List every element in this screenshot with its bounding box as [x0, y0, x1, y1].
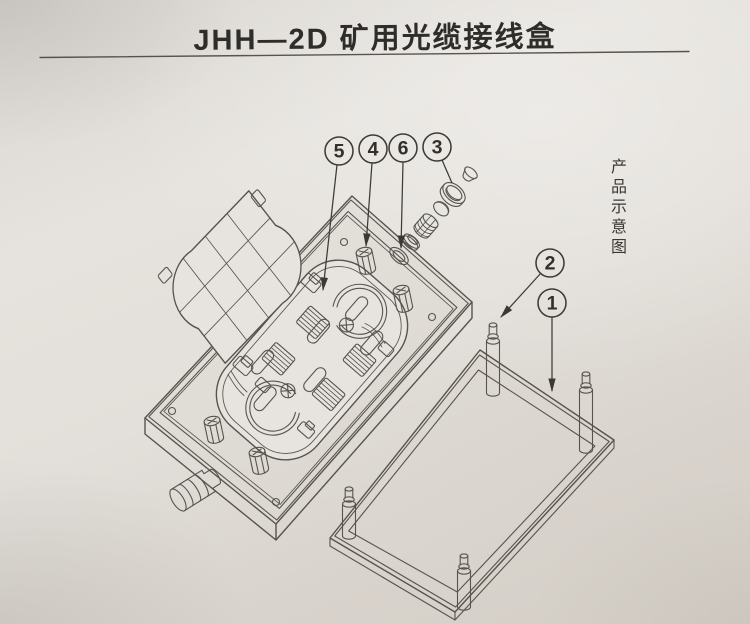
cable-gland-knob	[167, 464, 225, 513]
leader-3	[442, 160, 452, 183]
gland-body	[412, 211, 441, 240]
callout-2: 2	[536, 249, 564, 277]
leader-6	[401, 162, 403, 248]
photographed-page: JHH—2D 矿用光缆接线盒	[0, 0, 750, 624]
callout-6: 6	[389, 134, 417, 162]
callout-3: 3	[423, 133, 451, 161]
callout-1: 1	[538, 289, 566, 317]
callout-6-number: 6	[398, 138, 409, 160]
gland-dome	[431, 199, 452, 219]
gland-nut	[436, 178, 469, 210]
callout-5-number: 5	[334, 141, 345, 163]
lid-tab	[158, 267, 173, 284]
callout-1-number: 1	[547, 293, 558, 315]
title-rule	[40, 52, 689, 58]
gland-cap	[459, 165, 479, 185]
side-caption: 产品示意图	[604, 158, 628, 258]
callout-5: 5	[325, 137, 353, 165]
callout-2-number: 2	[545, 253, 556, 275]
callout-4: 4	[359, 135, 387, 163]
leader-2	[501, 273, 541, 317]
callout-4-number: 4	[368, 139, 379, 161]
callout-3-number: 3	[432, 137, 443, 159]
cable-gland-assembly	[387, 165, 479, 268]
exploded-diagram: 5 4 6 3 2 1	[0, 0, 750, 624]
